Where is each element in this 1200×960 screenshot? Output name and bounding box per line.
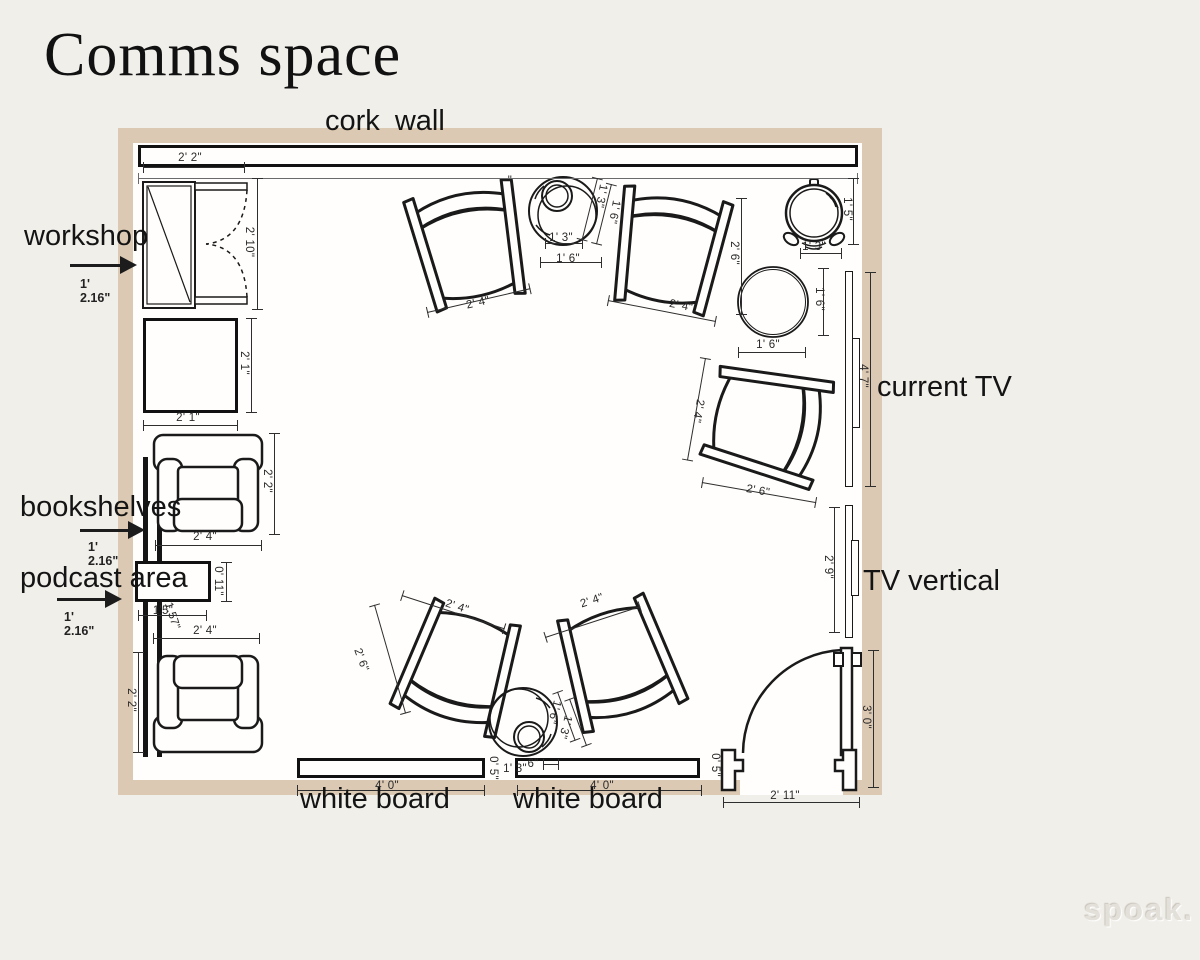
dimension-label: 2' 11" bbox=[770, 790, 800, 802]
arrow-head bbox=[105, 590, 122, 608]
dimension-line bbox=[853, 178, 854, 245]
dimension-label: 1' 6" bbox=[756, 339, 780, 351]
dimension-label: 2' 2" bbox=[178, 152, 202, 164]
dimension-line bbox=[800, 253, 842, 254]
dimension-label: " bbox=[508, 175, 512, 187]
dimension-label: 2' 1" bbox=[176, 412, 200, 424]
floor-plan-canvas: Comms space bbox=[0, 0, 1200, 960]
arrow-dim-label: 1' 2.16" bbox=[80, 277, 110, 305]
dimension-label: 4' 7" bbox=[857, 364, 869, 388]
dimension-label: 2' 10" bbox=[243, 227, 255, 257]
dimension-label: 1' 3" bbox=[802, 241, 826, 253]
dimension-line bbox=[143, 425, 238, 426]
square-table[interactable] bbox=[143, 318, 238, 413]
dimension-line bbox=[155, 545, 262, 546]
dimension-label: 2' 2" bbox=[261, 469, 273, 493]
dimension-label: 3' 0" bbox=[860, 705, 872, 729]
dimension-line bbox=[274, 433, 275, 535]
label-workshop[interactable]: workshop bbox=[24, 220, 148, 253]
dimension-line bbox=[834, 507, 835, 633]
arrow-head bbox=[128, 521, 145, 539]
dimension-label: 2' 4" bbox=[193, 625, 217, 637]
label-cork-wall[interactable]: cork wall bbox=[325, 105, 445, 138]
arrow-dim-label: 1' 2.16" bbox=[64, 610, 94, 638]
dimension-line bbox=[226, 562, 227, 602]
label-whiteboard-left[interactable]: white board bbox=[300, 783, 450, 816]
label-bookshelves[interactable]: bookshelves bbox=[20, 491, 181, 524]
dimension-line bbox=[870, 272, 871, 487]
dimension-line bbox=[143, 167, 245, 168]
dimension-label: 0' 11" bbox=[212, 566, 224, 596]
workshop-cabinet[interactable] bbox=[140, 178, 252, 312]
label-tv-vertical[interactable]: TV vertical bbox=[863, 565, 1000, 598]
arrow-shaft bbox=[70, 264, 120, 267]
label-podcast-area[interactable]: podcast area bbox=[20, 562, 188, 595]
dimension-line bbox=[251, 318, 252, 413]
dimension-line bbox=[153, 638, 260, 639]
arrow-shaft bbox=[80, 529, 128, 532]
dimension-line bbox=[257, 178, 258, 310]
dimension-label: 1' 6" bbox=[813, 287, 825, 311]
dimension-label: 6" bbox=[527, 758, 538, 770]
dimension-label: 2' 2" bbox=[125, 688, 137, 712]
spoak-watermark: spoak. bbox=[1084, 892, 1194, 928]
cork-wall-strip[interactable] bbox=[138, 145, 858, 167]
dimension-line bbox=[723, 802, 860, 803]
page-title: Comms space bbox=[44, 20, 401, 91]
dimension-line bbox=[741, 198, 742, 315]
dimension-label: 2' 9" bbox=[822, 555, 834, 579]
label-current-tv[interactable]: current TV bbox=[877, 371, 1012, 404]
round-table[interactable] bbox=[736, 265, 810, 339]
arrow-head bbox=[120, 256, 137, 274]
dimension-label: 1' 6" bbox=[556, 253, 580, 265]
dimension-label: 1' 3" bbox=[549, 232, 573, 244]
door[interactable] bbox=[713, 640, 865, 808]
dimension-label: 1' 3" bbox=[503, 763, 527, 775]
dimension-line bbox=[738, 352, 806, 353]
tv-vertical-bracket bbox=[851, 540, 859, 596]
armchair-bottom[interactable] bbox=[152, 652, 264, 754]
dimension-line bbox=[138, 652, 139, 753]
dimension-label: 0' 5" bbox=[709, 753, 721, 777]
label-whiteboard-right[interactable]: white board bbox=[513, 783, 663, 816]
dimension-line bbox=[543, 764, 559, 765]
dimension-label: 2' 4" bbox=[193, 531, 217, 543]
dimension-label: 0' 5" bbox=[487, 756, 499, 780]
dimension-line bbox=[138, 178, 858, 179]
dimension-label: 2' 6" bbox=[728, 241, 740, 265]
dimension-label: 1' 5" bbox=[841, 197, 853, 221]
dimension-line bbox=[873, 650, 874, 788]
whiteboard-left[interactable] bbox=[297, 758, 485, 778]
dimension-label: 2' 1" bbox=[238, 351, 250, 375]
arrow-shaft bbox=[57, 598, 105, 601]
